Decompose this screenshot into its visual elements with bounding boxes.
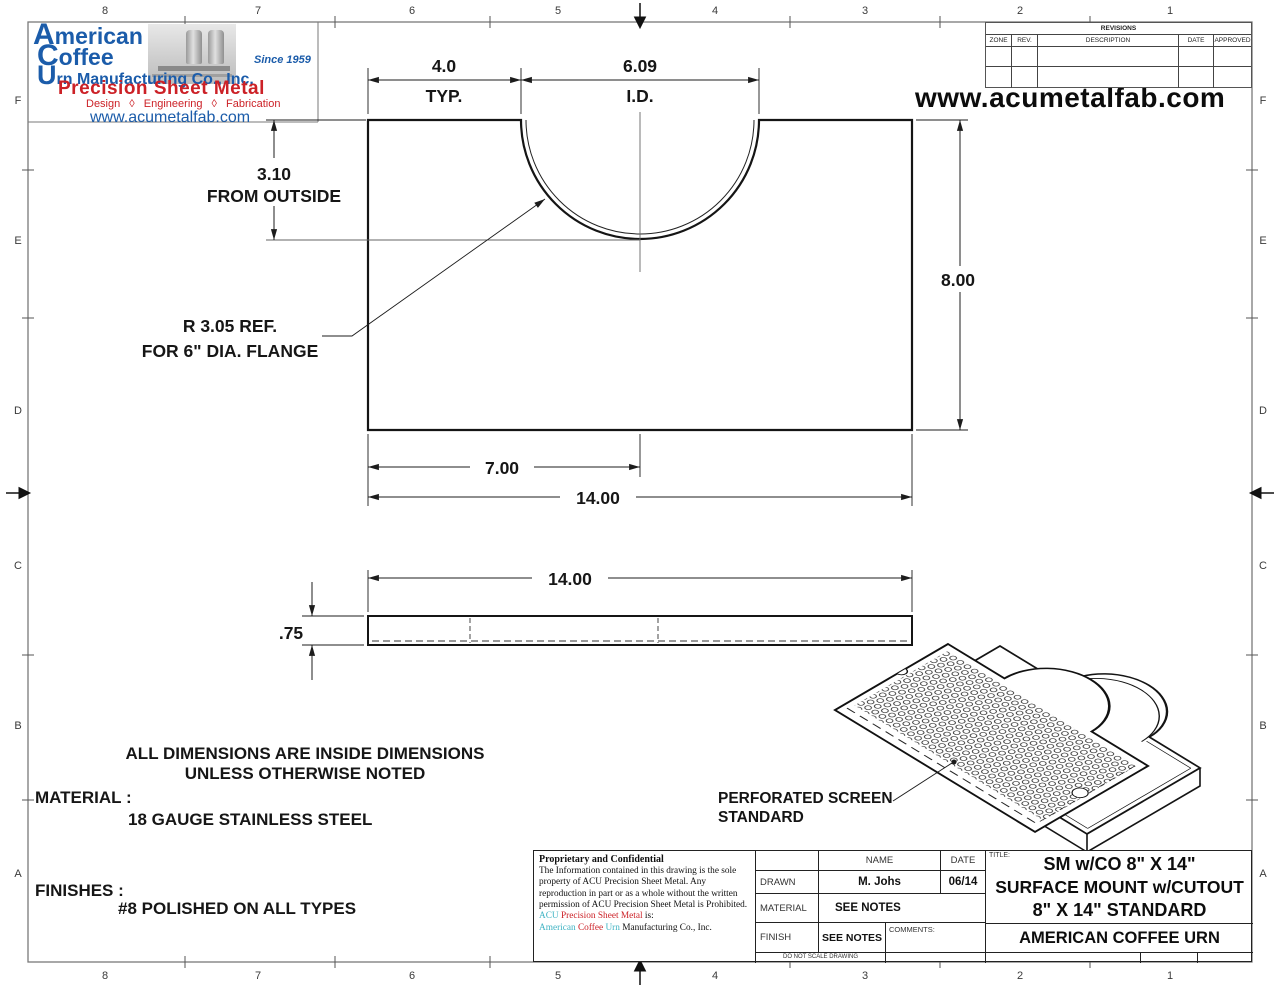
rev-col-approved: APPROVED [1214, 35, 1251, 47]
zone-label: 6 [409, 5, 415, 17]
proprietary-acu-line: ACU Precision Sheet Metal is: [539, 911, 750, 922]
tb-material-label: MATERIAL [756, 894, 819, 923]
zone-label: A [14, 868, 22, 880]
leader-dot [952, 760, 957, 765]
side-view [368, 616, 912, 645]
zone-label: 7 [255, 5, 261, 17]
dim-id: 6.09 [623, 56, 657, 76]
zone-label: 5 [555, 970, 561, 982]
rev-col-description: DESCRIPTION [1038, 35, 1179, 47]
zone-label: D [14, 405, 22, 417]
note-line1: ALL DIMENSIONS ARE INSIDE DIMENSIONS [55, 744, 555, 764]
dim-depth: 3.10 [257, 164, 291, 184]
rev-col-zone: ZONE [986, 35, 1012, 47]
material-value: 18 GAUGE STAINLESS STEEL [128, 810, 372, 830]
zone-label: C [1259, 560, 1267, 572]
revisions-table: REVISIONS ZONE REV. DESCRIPTION DATE APP… [985, 22, 1252, 88]
zone-label: D [1259, 405, 1267, 417]
iso-label-line1: PERFORATED SCREEN [718, 790, 893, 807]
finishes-label: FINISHES : [35, 881, 124, 901]
tb-cell-blank [756, 851, 819, 871]
rev-col-date: DATE [1179, 35, 1214, 47]
tb-drawn-name: M. Johs [819, 871, 941, 894]
drawing-svg: 8 7 6 5 4 3 2 1 8 7 6 5 4 3 2 1 F E D C … [0, 0, 1280, 989]
dim-id-suffix: I.D. [626, 86, 653, 106]
dim-side-width: 14.00 [548, 569, 592, 589]
zone-label: 2 [1017, 970, 1023, 982]
tb-title-line1: SM w/CO 8" X 14" [986, 854, 1253, 875]
tb-cell-blank [986, 953, 1141, 963]
iso-label-line2: STANDARD [718, 809, 804, 826]
tb-drawn-label: DRAWN [756, 871, 819, 894]
company-logo: American Coffee Urn Manufacturing Co., I… [28, 22, 318, 122]
logo-since: Since 1959 [254, 54, 311, 66]
zone-label: 7 [255, 970, 261, 982]
tb-cell-blank [1141, 953, 1198, 963]
revision-cell [1012, 47, 1038, 67]
zone-label: 1 [1167, 5, 1173, 17]
tb-date-header: DATE [941, 851, 986, 871]
zone-label: 2 [1017, 5, 1023, 17]
revision-cell [1038, 47, 1179, 67]
zone-label: E [1259, 235, 1266, 247]
radius-note-line2: FOR 6" DIA. FLANGE [142, 341, 319, 361]
proprietary-cell: Proprietary and Confidential The Informa… [534, 851, 756, 963]
zone-label: 5 [555, 5, 561, 17]
top-view [266, 112, 912, 430]
revision-cell [1214, 47, 1251, 67]
finishes-value: #8 POLISHED ON ALL TYPES [118, 899, 356, 919]
revision-cell [1179, 47, 1214, 67]
zone-label: 8 [102, 970, 108, 982]
title-block: Proprietary and Confidential The Informa… [533, 850, 1252, 962]
tb-name-header: NAME [819, 851, 941, 871]
tb-comments: COMMENTS: [886, 923, 986, 953]
zone-label: A [1259, 868, 1267, 880]
iso-view: PERFORATED SCREEN STANDARD [718, 616, 1243, 852]
dim-overall: 14.00 [576, 488, 620, 508]
tb-company: AMERICAN COFFEE URN [986, 923, 1253, 953]
revision-cell [1179, 67, 1214, 88]
radius-note-line1: R 3.05 REF. [183, 316, 277, 336]
tb-title-line2: SURFACE MOUNT w/CUTOUT [986, 877, 1253, 898]
zone-label: 4 [712, 970, 718, 982]
revision-cell [986, 47, 1012, 67]
rev-col-rev: REV. [1012, 35, 1038, 47]
dim-thickness: .75 [279, 623, 304, 643]
revision-cell [986, 67, 1012, 88]
note-line2: UNLESS OTHERWISE NOTED [55, 764, 555, 784]
zone-label: 3 [862, 970, 868, 982]
zone-label: 8 [102, 5, 108, 17]
revision-cell [1214, 67, 1251, 88]
zone-label: 6 [409, 970, 415, 982]
zone-label: 4 [712, 5, 718, 17]
tb-title-area: TITLE: SM w/CO 8" X 14" SURFACE MOUNT w/… [986, 851, 1253, 923]
dim-width-typ: 4.0 [432, 56, 457, 76]
zone-labels: 8 7 6 5 4 3 2 1 8 7 6 5 4 3 2 1 F E D C … [14, 5, 1267, 982]
material-label: MATERIAL : [35, 788, 132, 808]
revision-cell [1012, 67, 1038, 88]
tb-drawn-date: 06/14 [941, 871, 986, 894]
revision-cell [1038, 67, 1179, 88]
proprietary-title: Proprietary and Confidential [539, 854, 750, 865]
tb-title-line3: 8" X 14" STANDARD [986, 900, 1253, 921]
dim-center: 7.00 [485, 458, 519, 478]
zone-label: 3 [862, 5, 868, 17]
dim-width-typ-suffix: TYP. [426, 86, 463, 106]
zone-label: 1 [1167, 970, 1173, 982]
zone-label: F [15, 95, 22, 107]
proprietary-body: The Information contained in this drawin… [539, 866, 750, 911]
notes-dimensions: ALL DIMENSIONS ARE INSIDE DIMENSIONS UNL… [55, 744, 555, 784]
zone-label: C [14, 560, 22, 572]
drawing-sheet: 8 7 6 5 4 3 2 1 8 7 6 5 4 3 2 1 F E D C … [0, 0, 1280, 989]
zone-label: B [14, 720, 21, 732]
logo-tagline: Precision Sheet Metal [58, 78, 265, 100]
proprietary-company-line: American Coffee Urn Manufacturing Co., I… [539, 923, 750, 934]
tb-finish-label: FINISH [756, 923, 819, 953]
revisions-title: REVISIONS [986, 23, 1251, 35]
tb-no-scale: DO NOT SCALE DRAWING [756, 953, 886, 963]
iso-label-leader [893, 763, 952, 801]
tb-finish-value: SEE NOTES [819, 923, 886, 953]
tb-material-value: SEE NOTES [819, 894, 986, 923]
dim-depth-suffix: FROM OUTSIDE [207, 186, 341, 206]
tb-cell-blank [886, 953, 986, 963]
dim-height: 8.00 [941, 270, 975, 290]
zone-label: B [1259, 720, 1266, 732]
zone-label: F [1260, 95, 1267, 107]
zone-label: E [14, 235, 21, 247]
logo-url: www.acumetalfab.com [90, 109, 250, 127]
